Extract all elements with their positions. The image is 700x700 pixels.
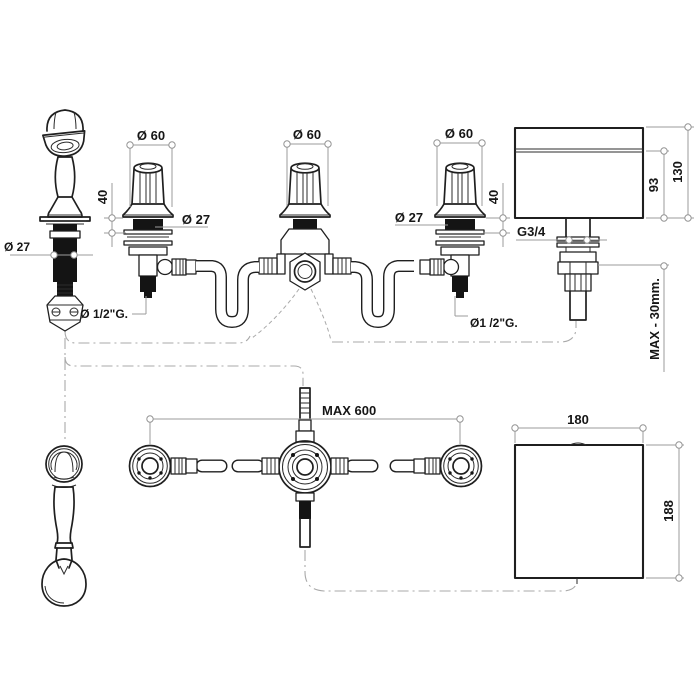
dim-left-valve-height: 40 — [95, 190, 110, 204]
hand-shower-front-view — [42, 446, 86, 606]
technical-drawing-page: Ø 27 Ø 60 40 Ø 27 Ø 1/2"G. — [0, 0, 700, 700]
hand-shower-side-view: Ø 27 — [4, 110, 93, 331]
diverter-side-view: Ø 60 — [196, 127, 414, 322]
dim-spout-plan-depth: 188 — [661, 500, 676, 522]
dim-spout-total-height: 130 — [670, 161, 685, 183]
dim-diverter-knob-diameter: Ø 60 — [293, 127, 321, 142]
dim-max-valve-spacing: MAX 600 — [322, 403, 376, 418]
cold-valve-plan — [396, 446, 482, 487]
dim-left-valve-inlet-thread: Ø 1/2"G. — [80, 307, 128, 321]
connection-centerlines — [65, 289, 577, 591]
dim-right-valve-inlet-thread: Ø1 /2"G. — [470, 316, 518, 330]
cold-valve-side-view: Ø 60 40 Ø 27 Ø1 /2"G. — [395, 126, 518, 330]
mixer-plan-view: MAX 600 — [130, 388, 482, 547]
dim-right-valve-knob-diameter: Ø 60 — [445, 126, 473, 141]
spout-plan-view: 180 188 — [512, 412, 684, 584]
dim-spout-plan-width: 180 — [567, 412, 589, 427]
dim-right-valve-shaft-diameter: Ø 27 — [395, 210, 423, 225]
bath-mixer-installation-drawing: Ø 27 Ø 60 40 Ø 27 Ø 1/2"G. — [0, 0, 700, 700]
dim-spout-max-deck-thickness: MAX - 30mm. — [647, 278, 662, 360]
hot-valve-side-view: Ø 60 40 Ø 27 Ø 1/2"G. — [80, 128, 210, 321]
dim-handshower-shaft-diameter: Ø 27 — [4, 240, 30, 254]
hot-valve-plan — [130, 446, 222, 487]
dim-spout-tail-thread: G3/4 — [517, 224, 546, 239]
dim-left-valve-shaft-diameter: Ø 27 — [182, 212, 210, 227]
dim-spout-body-height: 93 — [646, 178, 661, 192]
dim-left-valve-knob-diameter: Ø 60 — [137, 128, 165, 143]
spout-side-view: G3/4 93 130 MAX - 30mm. — [515, 124, 694, 372]
dim-right-valve-height: 40 — [486, 190, 501, 204]
